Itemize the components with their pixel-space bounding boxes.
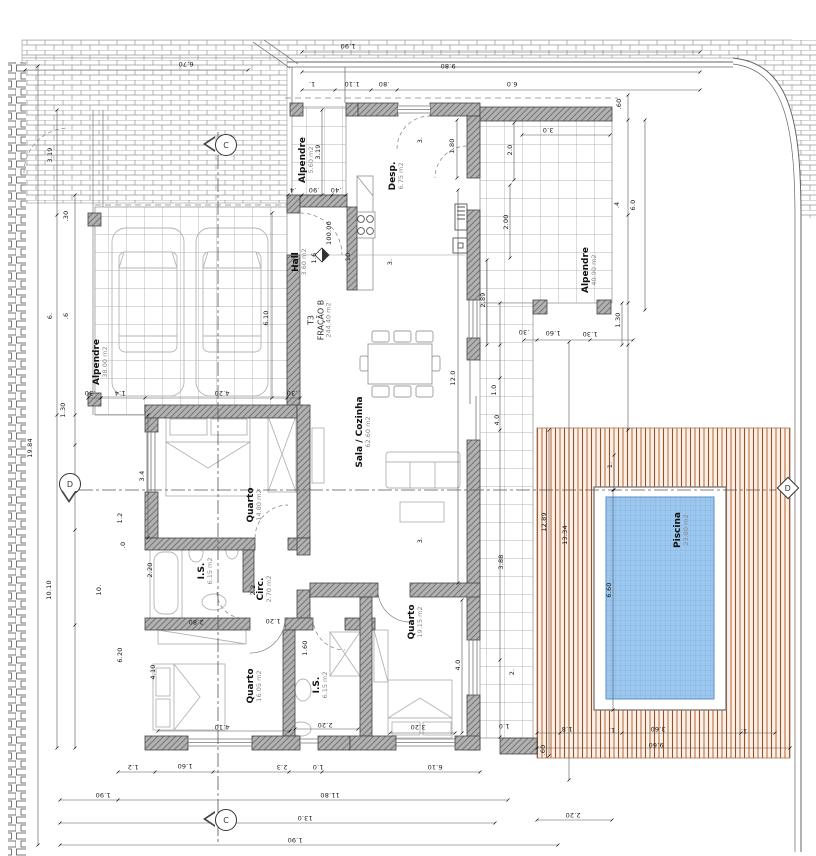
floorplan-canvas: T3 FRAÇÃO B 244.40 m2 Alpendre38.00 m2Al… (0, 0, 816, 856)
kitchen-appliances (453, 204, 468, 253)
pool-water (606, 497, 714, 699)
bed (388, 680, 452, 738)
bathtub (150, 548, 182, 618)
sofa (312, 428, 460, 522)
shower (330, 632, 360, 676)
washbasin (295, 679, 311, 701)
level-marker (300, 248, 465, 262)
boundary-wall (8, 62, 26, 856)
carport-tiles (95, 207, 287, 415)
rear-porch-tiles (480, 120, 612, 303)
dining-table (360, 331, 440, 397)
bed (153, 664, 225, 730)
entry-porch-tiles (292, 107, 346, 195)
walkway-tiles (480, 303, 533, 738)
floorplan-linework (0, 0, 816, 856)
bed (166, 416, 250, 496)
